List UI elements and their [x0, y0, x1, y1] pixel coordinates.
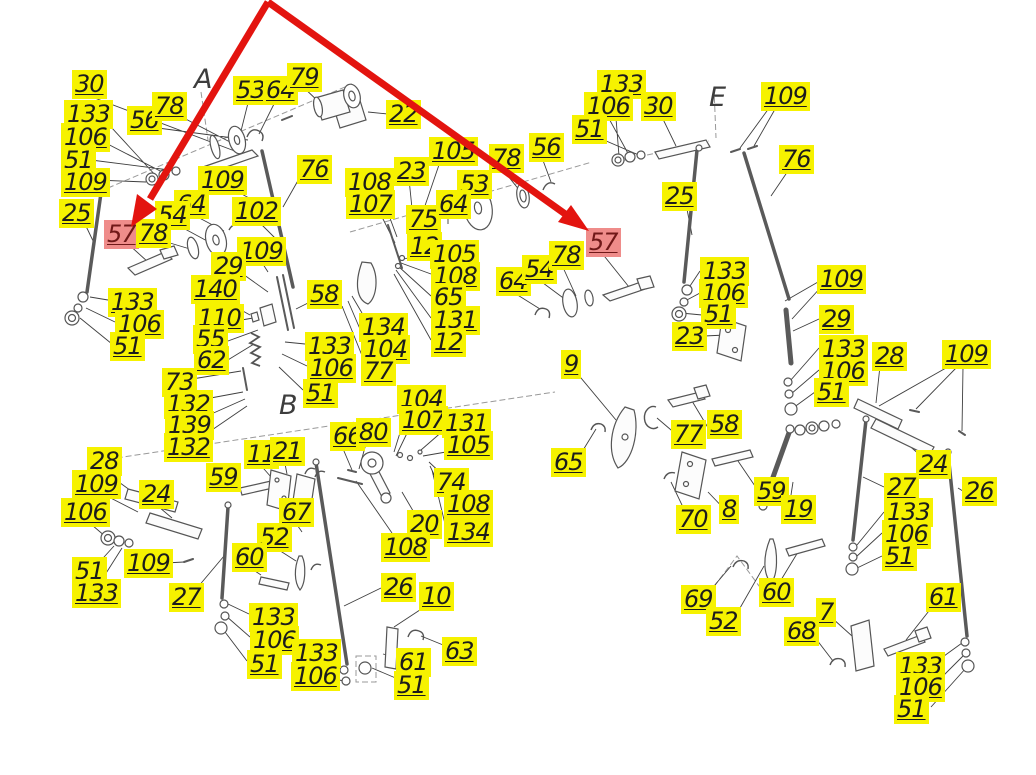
- part-number-label[interactable]: 26: [381, 573, 416, 602]
- part-number-label[interactable]: 109: [72, 470, 121, 499]
- part-number-label[interactable]: 78: [549, 241, 584, 270]
- part-number-label[interactable]: 12: [431, 328, 466, 357]
- part-number-label[interactable]: 107: [346, 190, 395, 219]
- section-letter-E: E: [709, 84, 726, 112]
- part-number-label[interactable]: 68: [784, 617, 819, 646]
- part-number-label[interactable]: 70: [676, 505, 711, 534]
- part-number-label[interactable]: 23: [672, 322, 707, 351]
- part-number-label[interactable]: 25: [662, 182, 697, 211]
- part-number-label[interactable]: 27: [169, 583, 204, 612]
- part-number-label[interactable]: 76: [297, 155, 332, 184]
- part-number-label[interactable]: 63: [442, 637, 477, 666]
- part-number-label[interactable]: 77: [671, 420, 706, 449]
- part-number-label[interactable]: 59: [206, 463, 241, 492]
- part-number-label[interactable]: 108: [381, 533, 430, 562]
- part-number-label[interactable]: 109: [761, 82, 810, 111]
- part-number-label[interactable]: 56: [529, 133, 564, 162]
- part-number-label[interactable]: 133: [72, 579, 121, 608]
- part-number-label[interactable]: 78: [136, 219, 171, 248]
- part-number-label[interactable]: 76: [779, 145, 814, 174]
- part-number-label[interactable]: 80: [356, 418, 391, 447]
- part-number-label[interactable]: 24: [916, 450, 951, 479]
- part-number-label[interactable]: 105: [429, 137, 478, 166]
- part-number-label[interactable]: 58: [307, 280, 342, 309]
- part-number-label[interactable]: 78: [489, 144, 524, 173]
- part-number-label[interactable]: 29: [819, 305, 854, 334]
- part-number-label[interactable]: 51: [247, 650, 282, 679]
- part-number-label[interactable]: 109: [61, 168, 110, 197]
- part-number-label[interactable]: 25: [59, 199, 94, 228]
- part-number-label[interactable]: 134: [444, 518, 493, 547]
- part-number-label[interactable]: 108: [444, 490, 493, 519]
- part-number-label[interactable]: 60: [759, 578, 794, 607]
- part-number-label[interactable]: 19: [781, 495, 816, 524]
- part-number-label[interactable]: 51: [814, 378, 849, 407]
- part-number-label[interactable]: 106: [291, 662, 340, 691]
- part-number-label[interactable]: 58: [707, 410, 742, 439]
- part-number-label[interactable]: 52: [706, 607, 741, 636]
- part-number-label[interactable]: 51: [110, 332, 145, 361]
- part-number-label[interactable]: 28: [872, 342, 907, 371]
- part-number-label[interactable]: 51: [882, 542, 917, 571]
- part-number-label[interactable]: 65: [551, 448, 586, 477]
- part-number-label[interactable]: 21: [270, 437, 305, 466]
- part-number-label[interactable]: 78: [152, 92, 187, 121]
- part-number-label[interactable]: 24: [139, 480, 174, 509]
- parts-catalog-canvas: ABE 301331065110925575678536479109102766…: [0, 0, 1036, 775]
- part-number-label[interactable]: 109: [124, 549, 173, 578]
- part-number-label[interactable]: 107: [399, 406, 448, 435]
- part-number-label[interactable]: 9: [561, 350, 581, 379]
- part-number-label[interactable]: 10: [419, 582, 454, 611]
- section-letter-A: A: [194, 66, 212, 94]
- part-number-label[interactable]: 106: [61, 498, 110, 527]
- part-number-label[interactable]: 102: [232, 197, 281, 226]
- part-number-label[interactable]: 30: [72, 70, 107, 99]
- part-number-label[interactable]: 105: [444, 431, 493, 460]
- part-number-label[interactable]: 51: [572, 115, 607, 144]
- part-number-label[interactable]: 64: [436, 190, 471, 219]
- part-number-label[interactable]: 109: [942, 340, 991, 369]
- part-number-label[interactable]: 60: [232, 543, 267, 572]
- part-number-label[interactable]: 26: [962, 477, 997, 506]
- part-number-label[interactable]: 132: [164, 433, 213, 462]
- part-number-label[interactable]: 61: [926, 583, 961, 612]
- part-number-label[interactable]: 79: [287, 63, 322, 92]
- part-number-label[interactable]: 109: [817, 265, 866, 294]
- part-number-label[interactable]: 8: [719, 495, 739, 524]
- part-number-label[interactable]: 23: [394, 157, 429, 186]
- part-number-label[interactable]: 77: [361, 357, 396, 386]
- part-number-label[interactable]: 51: [894, 695, 929, 724]
- part-number-label[interactable]: 51: [394, 671, 429, 700]
- part-number-label[interactable]: 22: [386, 100, 421, 129]
- section-letter-B: B: [279, 392, 298, 420]
- part-number-label[interactable]: 7: [816, 598, 836, 627]
- part-number-label-highlighted[interactable]: 57: [586, 228, 621, 257]
- part-number-label[interactable]: 62: [194, 346, 229, 375]
- part-number-label[interactable]: 30: [641, 92, 676, 121]
- part-number-label[interactable]: 51: [303, 379, 338, 408]
- part-number-label[interactable]: 140: [191, 275, 240, 304]
- part-number-label-highlighted[interactable]: 57: [104, 220, 139, 249]
